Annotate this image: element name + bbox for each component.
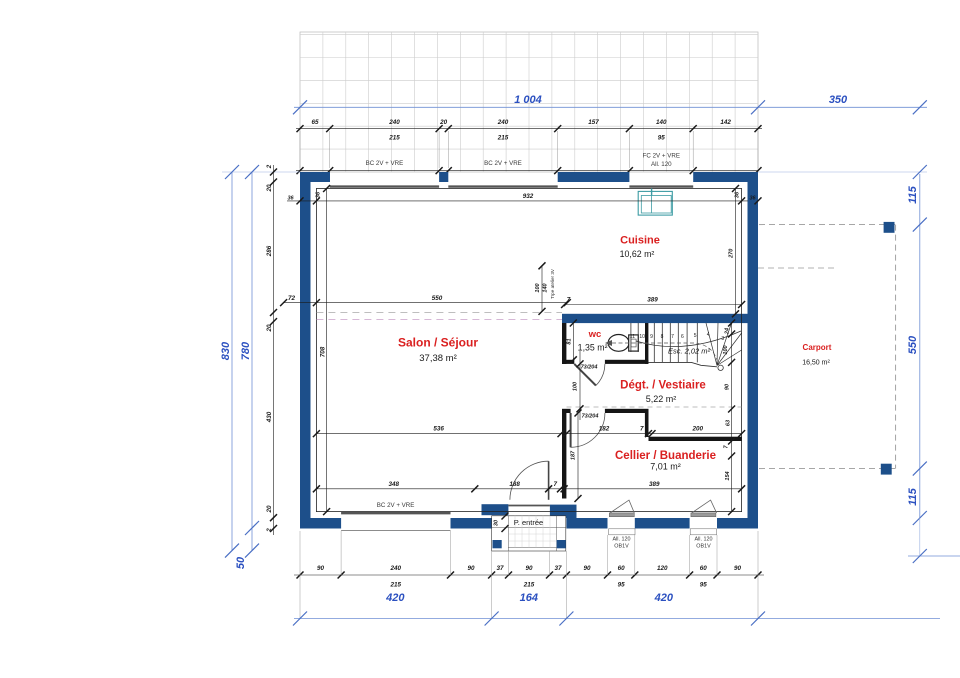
svg-text:430: 430 (266, 411, 273, 423)
svg-text:36: 36 (749, 196, 756, 202)
svg-text:240: 240 (497, 119, 509, 126)
svg-text:182: 182 (599, 425, 610, 432)
svg-text:73/204: 73/204 (582, 414, 599, 420)
svg-text:BC 2V + VRE: BC 2V + VRE (377, 502, 415, 509)
svg-text:90: 90 (525, 565, 533, 572)
svg-text:142: 142 (720, 119, 731, 126)
svg-text:90: 90 (583, 565, 591, 572)
svg-text:73/204: 73/204 (581, 365, 598, 371)
svg-text:389: 389 (647, 296, 658, 303)
svg-text:20: 20 (266, 324, 273, 333)
svg-text:50: 50 (235, 556, 247, 569)
svg-text:95: 95 (658, 135, 666, 142)
svg-text:All. 120: All. 120 (651, 161, 672, 168)
svg-text:270: 270 (729, 249, 735, 259)
svg-text:350: 350 (829, 94, 848, 106)
svg-text:100: 100 (723, 345, 729, 354)
svg-text:830: 830 (220, 341, 232, 360)
svg-text:20: 20 (266, 184, 273, 193)
svg-text:Trpe atelier 3V: Trpe atelier 3V (550, 268, 555, 299)
svg-text:157: 157 (588, 119, 599, 126)
svg-text:4: 4 (707, 332, 710, 338)
svg-text:BC 2V + VRE: BC 2V + VRE (366, 160, 404, 167)
svg-text:1 004: 1 004 (514, 94, 542, 106)
svg-text:FC 2V + VRE: FC 2V + VRE (643, 153, 680, 160)
svg-text:164: 164 (520, 592, 538, 604)
svg-text:Carport: Carport (803, 343, 832, 352)
svg-text:Salon / Séjour: Salon / Séjour (398, 336, 478, 350)
svg-text:1,35 m²: 1,35 m² (578, 343, 608, 353)
svg-text:72: 72 (288, 295, 296, 302)
svg-text:90: 90 (467, 565, 475, 572)
svg-text:16,50 m²: 16,50 m² (802, 360, 830, 367)
svg-text:10,62 m²: 10,62 m² (620, 249, 655, 259)
svg-text:389: 389 (649, 481, 660, 488)
svg-text:140: 140 (656, 119, 667, 126)
svg-text:10: 10 (639, 334, 645, 340)
svg-text:95: 95 (700, 582, 708, 589)
svg-text:All. 120: All. 120 (613, 537, 631, 543)
svg-text:37: 37 (554, 565, 562, 572)
svg-text:36: 36 (316, 191, 322, 198)
svg-text:215: 215 (523, 582, 535, 589)
svg-text:3: 3 (721, 336, 724, 342)
svg-text:7: 7 (671, 334, 674, 340)
svg-text:115: 115 (907, 185, 919, 203)
svg-text:188: 188 (509, 481, 520, 488)
svg-text:115: 115 (907, 487, 919, 505)
svg-text:OB1V: OB1V (696, 544, 711, 550)
svg-text:5,22 m²: 5,22 m² (646, 394, 677, 404)
svg-text:7: 7 (567, 297, 571, 304)
svg-text:420: 420 (385, 592, 405, 604)
svg-text:Dégt. / Vestiaire: Dégt. / Vestiaire (620, 380, 706, 392)
svg-text:65: 65 (311, 119, 319, 126)
svg-text:7: 7 (553, 481, 557, 488)
svg-text:63: 63 (726, 420, 732, 426)
svg-text:286: 286 (266, 245, 273, 257)
svg-text:8: 8 (661, 334, 664, 340)
svg-text:154: 154 (725, 471, 731, 480)
svg-text:708: 708 (319, 346, 326, 357)
svg-text:5: 5 (694, 333, 697, 339)
svg-text:20: 20 (266, 505, 273, 514)
svg-text:81: 81 (567, 338, 573, 344)
svg-text:60: 60 (618, 565, 626, 572)
svg-text:420: 420 (654, 592, 674, 604)
svg-text:7,01 m²: 7,01 m² (650, 462, 681, 472)
svg-text:90: 90 (725, 384, 731, 390)
svg-text:30: 30 (494, 520, 500, 526)
svg-text:932: 932 (523, 193, 534, 200)
svg-text:100: 100 (573, 382, 579, 391)
svg-text:All. 120: All. 120 (695, 537, 713, 543)
svg-text:215: 215 (390, 582, 402, 589)
svg-text:100: 100 (535, 283, 541, 292)
svg-text:536: 536 (433, 425, 444, 432)
svg-text:780: 780 (240, 341, 252, 360)
svg-text:Cellier / Buanderie: Cellier / Buanderie (615, 450, 716, 462)
svg-text:240: 240 (388, 119, 400, 126)
svg-text:200: 200 (692, 425, 704, 432)
svg-text:2: 2 (266, 528, 273, 533)
svg-text:11: 11 (630, 334, 635, 340)
svg-text:90: 90 (317, 565, 325, 572)
svg-text:BC 2V + VRE: BC 2V + VRE (484, 160, 522, 167)
svg-text:2: 2 (266, 164, 273, 169)
svg-text:6: 6 (681, 334, 684, 340)
svg-text:wc: wc (588, 329, 602, 340)
svg-text:7: 7 (640, 425, 644, 432)
svg-text:24: 24 (725, 328, 731, 335)
svg-text:7: 7 (724, 445, 730, 449)
svg-text:9: 9 (650, 334, 653, 340)
svg-text:95: 95 (618, 582, 626, 589)
svg-text:P. entrée: P. entrée (514, 518, 543, 527)
svg-text:120: 120 (657, 565, 668, 572)
svg-text:37,38 m²: 37,38 m² (419, 353, 457, 364)
svg-text:348: 348 (389, 481, 400, 488)
svg-text:90: 90 (734, 565, 742, 572)
svg-text:Esc. 2,02 m²: Esc. 2,02 m² (668, 347, 711, 356)
svg-text:550: 550 (432, 295, 443, 302)
svg-text:37: 37 (496, 565, 504, 572)
svg-text:240: 240 (390, 565, 402, 572)
svg-text:20: 20 (439, 119, 448, 126)
svg-text:215: 215 (497, 135, 509, 142)
svg-text:60: 60 (700, 565, 708, 572)
svg-text:36: 36 (287, 196, 294, 202)
svg-text:187: 187 (571, 450, 577, 460)
svg-text:550: 550 (907, 335, 919, 354)
svg-text:Cuisine: Cuisine (620, 235, 660, 247)
svg-text:140: 140 (543, 283, 549, 292)
svg-text:215: 215 (388, 135, 400, 142)
svg-text:OB1V: OB1V (614, 544, 629, 550)
